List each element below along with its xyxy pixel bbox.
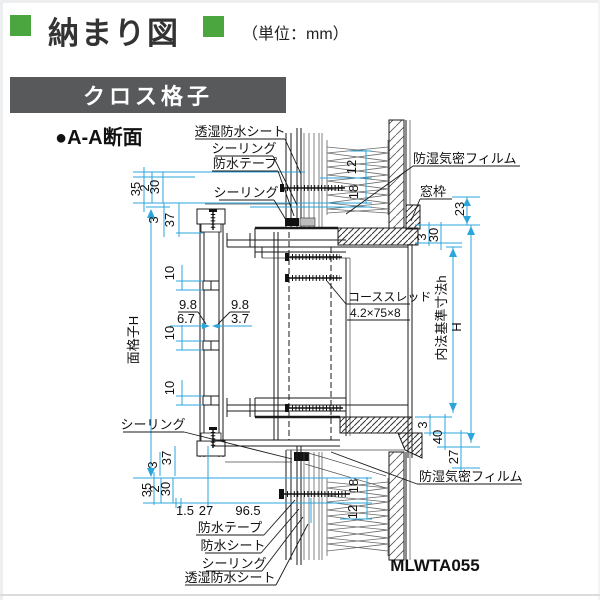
label-screw-spec: 4.2×75×8 [350,306,401,320]
dim-bh-965: 96.5 [235,503,260,518]
dim-bl-3: 3 [145,461,160,468]
label-bousui-sheet-bottom: 防水シート [200,538,265,553]
label-boushitsu-film-bottom: 防湿気密フィルム [419,469,522,484]
label-toshitsu-top: 透湿防水シート [194,124,285,139]
dim-bl-30: 30 [158,482,173,496]
dim-lat-98r: 9.8 [231,297,249,312]
dim-lat-10c: 10 [162,381,177,395]
drawing-code: MLWTA055 [390,556,479,575]
dim-lat-10b: 10 [162,326,177,340]
dim-bh-15: 1.5 [176,503,194,518]
dim-lat-98l: 9.8 [179,297,197,312]
label-sealing-top2: シーリング [213,185,278,200]
label-boushitsu-film-top: 防湿気密フィルム [413,151,516,166]
installation-diagram: 透湿防水シート シーリング 防水テープ シーリング 防湿気密フィルム 窓枠 コー… [0,0,600,600]
dim-br-27: 27 [446,450,461,464]
dim-lat-10a: 10 [162,266,177,280]
label-sealing-top1: シーリング [211,141,276,156]
dim-bh-27: 27 [199,503,213,518]
dim-lat-37: 3.7 [231,311,249,326]
label-sealing-bottom: シーリング [201,556,266,571]
dim-tr-23: 23 [452,202,467,216]
label-bousui-tape-top: 防水テープ [213,156,277,171]
dim-bl-37: 37 [159,451,174,465]
dimension-lines [133,150,480,523]
course-thread-screw-2 [285,274,342,282]
dim-tl-3: 3 [146,216,161,223]
catalog-page: 納まり図 （単位：mm） クロス格子 ●A-A断面 [0,0,600,600]
dim-tr-30: 30 [426,228,441,242]
dim-wt-12: 12 [344,160,359,174]
label-toshitsu-bottom: 透湿防水シート [184,570,275,585]
label-bousui-tape-bottom: 防水テープ [198,520,262,535]
dim-wb-12: 12 [345,505,360,519]
dim-lattice-height: 面格子H [126,316,141,364]
dim-overall-h: H [449,322,464,331]
dim-br-40: 40 [430,430,445,444]
label-screw-name: コーススレッド [348,290,431,304]
dim-tl-37: 37 [162,213,177,227]
dim-tl-30: 30 [147,180,162,194]
label-madowaku: 窓枠 [420,184,446,199]
course-thread-screw-1 [285,253,342,261]
dim-lat-67: 6.7 [177,311,195,326]
label-sealing-left: シーリング [120,417,185,432]
dim-br-3: 3 [415,421,430,428]
dim-wb-18: 18 [346,479,361,493]
dim-wt-18: 18 [346,185,361,199]
dim-inner-ref: 内法基準寸法h [434,275,449,360]
page-edge-bottom [0,594,600,596]
